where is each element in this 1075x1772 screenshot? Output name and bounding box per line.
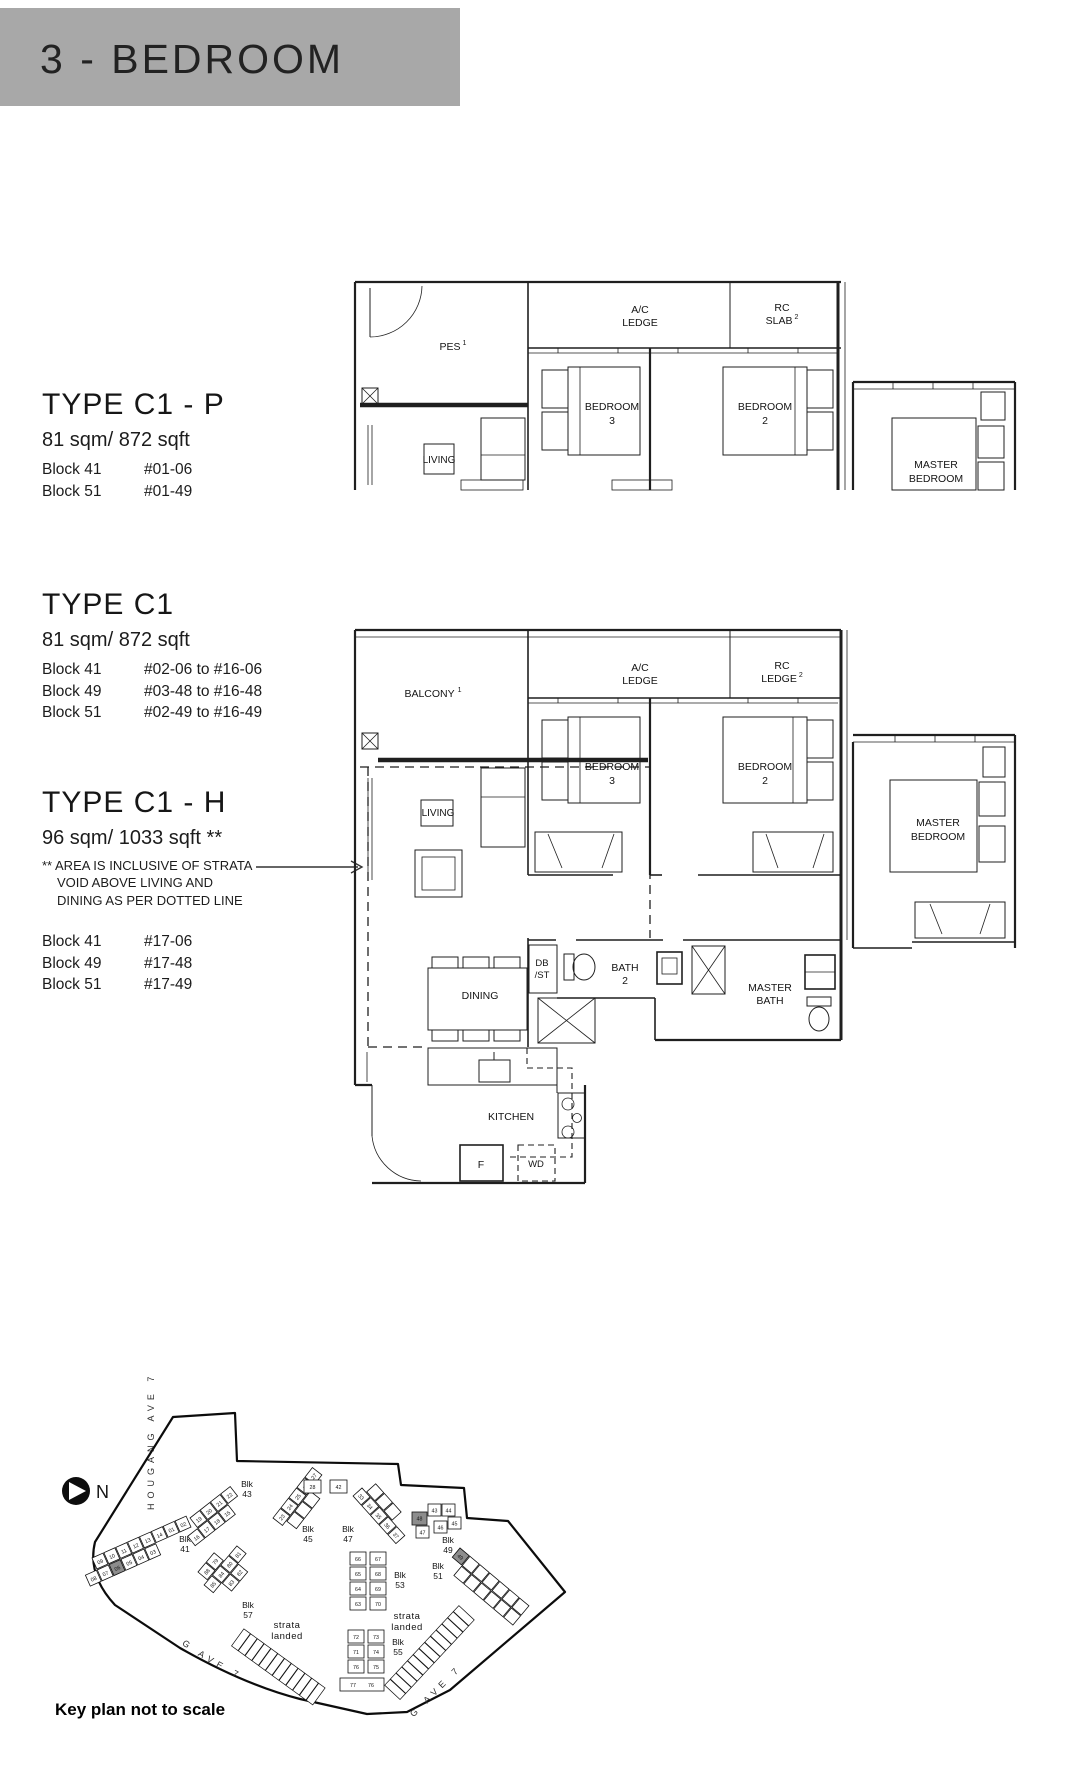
svg-text:76: 76 [368, 1683, 374, 1689]
svg-text:LEDGE2: LEDGE2 [761, 672, 803, 685]
unit-number: #02-49 to #16-49 [144, 702, 262, 724]
type-c1p-title: TYPE C1 - P [42, 388, 225, 422]
strata-landed-right-label: strata [394, 1611, 421, 1622]
blk55-cluster: 7273 7174 7675 7776 [340, 1630, 384, 1691]
room-label-master-bedroom: MASTER [914, 459, 958, 471]
living-furniture [415, 768, 525, 897]
block-label: Block 41 [42, 931, 118, 953]
entry-door-c1 [372, 1085, 421, 1181]
room-label-living: LIVING [422, 808, 455, 819]
strata-landed-left-label: strata [274, 1620, 301, 1631]
blk49-cluster: 48 4344 454647 [412, 1504, 461, 1538]
svg-text:47: 47 [343, 1534, 353, 1544]
floorplan-c1: BALCONY1 A/C LEDGE RC LEDGE2 BEDROOM 3 B… [318, 550, 1075, 1210]
svg-text:68: 68 [375, 1572, 381, 1578]
svg-text:76: 76 [353, 1665, 359, 1671]
unit-row: Block 51 #02-49 to #16-49 [42, 702, 262, 724]
unit-row: Block 41 #01-06 [42, 459, 225, 481]
svg-text:LEDGE: LEDGE [622, 675, 658, 687]
unit-row: Block 49 #17-48 [42, 953, 262, 975]
block-label: Block 51 [42, 702, 118, 724]
svg-text:44: 44 [446, 1509, 452, 1515]
blk43-cluster: 19202122 16171815 [180, 1487, 246, 1546]
svg-text:42: 42 [336, 1485, 342, 1491]
unit-number: #17-06 [144, 931, 192, 953]
living-furniture [424, 418, 525, 480]
wardrobe-hatch [535, 832, 833, 872]
svg-text:2: 2 [762, 775, 768, 787]
room-label-ac-ledge: A/C [631, 662, 649, 674]
north-label: N [96, 1482, 110, 1502]
type-c1p-area: 81 sqm/ 872 sqft [42, 429, 225, 452]
block-label: Block 49 [42, 681, 118, 703]
svg-text:46: 46 [438, 1526, 444, 1532]
room-label-bedroom3: BEDROOM [585, 401, 639, 413]
room-label-bedroom2: BEDROOM [738, 401, 792, 413]
svg-text:43: 43 [432, 1509, 438, 1515]
unit-number: #03-48 to #16-48 [144, 681, 262, 703]
svg-text:64: 64 [355, 1587, 361, 1593]
svg-text:BATH: BATH [756, 995, 783, 1007]
room-label-master-bedroom: MASTER [916, 817, 960, 829]
db-st-closet [529, 945, 557, 993]
strata-void-dashed-line [360, 767, 650, 1157]
svg-text:65: 65 [355, 1572, 361, 1578]
meter-box-icon [362, 388, 378, 404]
room-label-kitchen: KITCHEN [488, 1111, 534, 1123]
svg-text:41: 41 [180, 1544, 190, 1554]
block-label: Block 41 [42, 659, 118, 681]
room-label-ac-ledge: A/C [631, 304, 649, 316]
keyplan-caption: Key plan not to scale [55, 1700, 225, 1720]
room-label-bedroom3: BEDROOM [585, 761, 639, 773]
blk55-label: Blk [392, 1637, 405, 1647]
master-bath-fixtures [805, 955, 835, 1031]
blk45-label: Blk [302, 1524, 315, 1534]
svg-text:55: 55 [393, 1647, 403, 1657]
blk51-label: Blk [432, 1561, 445, 1571]
blk49-label: Blk [442, 1535, 455, 1545]
svg-text:LEDGE: LEDGE [622, 317, 658, 329]
label-fridge: F [478, 1159, 484, 1171]
blk47-label: Blk [342, 1524, 355, 1534]
unit-row: Block 49 #03-48 to #16-48 [42, 681, 262, 703]
svg-text:landed: landed [271, 1631, 303, 1642]
svg-text:43: 43 [242, 1489, 252, 1499]
label-washer-dryer: WD [528, 1159, 544, 1170]
svg-text:49: 49 [443, 1545, 453, 1555]
svg-text:51: 51 [433, 1571, 443, 1581]
page-title: 3 - BEDROOM [0, 8, 460, 110]
unit-number: #17-48 [144, 953, 192, 975]
block-label: Block 49 [42, 953, 118, 975]
svg-text:45: 45 [303, 1534, 313, 1544]
unit-number: #01-06 [144, 459, 192, 481]
svg-text:75: 75 [373, 1665, 379, 1671]
type-c1-area: 81 sqm/ 872 sqft [42, 629, 262, 652]
svg-text:/ST: /ST [535, 970, 550, 981]
wardrobe-hatch [915, 902, 1005, 938]
svg-text:landed: landed [391, 1622, 423, 1633]
svg-text:45: 45 [452, 1522, 458, 1528]
unit-number: #02-06 to #16-06 [144, 659, 262, 681]
svg-text:71: 71 [353, 1650, 359, 1656]
blk57-label: Blk [242, 1600, 255, 1610]
entry-door-c1p [370, 286, 422, 337]
shaft-box [538, 998, 595, 1043]
svg-text:63: 63 [355, 1602, 361, 1608]
room-label-bedroom2: BEDROOM [738, 761, 792, 773]
shower-stall [692, 946, 725, 994]
svg-text:57: 57 [243, 1610, 253, 1620]
blk53-cluster: 6667 6568 6469 6370 [350, 1552, 386, 1610]
svg-text:BEDROOM: BEDROOM [911, 831, 965, 843]
blk47-cluster: 3334353637 [353, 1479, 414, 1543]
strata-void-note: ** AREA IS INCLUSIVE OF STRATA VOID ABOV… [42, 857, 262, 909]
north-compass-icon: N [62, 1477, 110, 1505]
unit-row: Block 51 #17-49 [42, 974, 262, 996]
key-plan: N HOUGANG AVE 7 0910111213140102 0807060… [40, 1390, 580, 1730]
walls-c1 [355, 630, 1015, 1183]
meter-box-icon [362, 733, 378, 749]
block-label: Block 41 [42, 459, 118, 481]
room-label-master-bath: MASTER [748, 982, 792, 994]
svg-text:48: 48 [417, 1517, 423, 1523]
blk53-label: Blk [394, 1570, 407, 1580]
svg-text:SLAB2: SLAB2 [766, 314, 799, 327]
type-c1-info: TYPE C1 81 sqm/ 872 sqft Block 41 #02-06… [42, 588, 262, 724]
svg-text:70: 70 [375, 1602, 381, 1608]
bedroom2-bed [723, 717, 833, 803]
floorplan-c1p: PES1 A/C LEDGE RC SLAB2 BEDROOM 3 BEDROO… [318, 240, 1075, 490]
street-label-right: HOUGANG AVE 7 [34, 1382, 464, 1719]
room-label-living: LIVING [423, 455, 456, 466]
svg-text:3: 3 [609, 775, 615, 787]
unit-row: Block 41 #17-06 [42, 931, 262, 953]
svg-text:28: 28 [310, 1485, 316, 1491]
wardrobe-hatch [461, 480, 672, 490]
svg-text:BEDROOM: BEDROOM [909, 473, 963, 485]
svg-text:67: 67 [375, 1557, 381, 1563]
blk41-cluster: 0910111213140102 080706050403 [80, 1516, 196, 1586]
room-label-rc-slab: RC [774, 302, 790, 314]
block-label: Block 51 [42, 481, 118, 503]
svg-text:66: 66 [355, 1557, 361, 1563]
svg-text:2: 2 [762, 415, 768, 427]
site-boundary [93, 1413, 565, 1714]
room-label-bath2: BATH [611, 962, 638, 974]
room-label-pes: PES1 [440, 340, 467, 353]
svg-text:53: 53 [395, 1580, 405, 1590]
floorplan-page: { "header": { "title": "3 - BEDROOM" }, … [0, 0, 1075, 1772]
unit-row: Block 51 #01-49 [42, 481, 225, 503]
master-bed [890, 747, 1005, 872]
blk57-cluster: 8879 85848081 8382 [194, 1538, 256, 1601]
type-c1-title: TYPE C1 [42, 588, 262, 622]
mid-units: 2842 [304, 1480, 347, 1493]
blk43-label: Blk [241, 1479, 254, 1489]
type-c1p-info: TYPE C1 - P 81 sqm/ 872 sqft Block 41 #0… [42, 388, 225, 502]
svg-text:72: 72 [353, 1635, 359, 1641]
unit-row: Block 41 #02-06 to #16-06 [42, 659, 262, 681]
svg-text:2: 2 [622, 975, 628, 987]
room-label-rc-ledge: RC [774, 660, 790, 672]
title-banner: 3 - BEDROOM [0, 8, 460, 106]
unit-number: #17-49 [144, 974, 192, 996]
type-c1h-area: 96 sqm/ 1033 sqft ** [42, 827, 262, 850]
svg-text:77: 77 [350, 1683, 356, 1689]
svg-text:69: 69 [375, 1587, 381, 1593]
street-label-left: HOUGANG AVE 7 [146, 1372, 156, 1510]
svg-text:47: 47 [420, 1531, 426, 1537]
room-label-dining: DINING [462, 990, 499, 1002]
svg-text:73: 73 [373, 1635, 379, 1641]
room-label-db-st: DB [535, 958, 548, 969]
type-c1h-title: TYPE C1 - H [42, 786, 262, 820]
svg-text:74: 74 [373, 1650, 379, 1656]
svg-text:3: 3 [609, 415, 615, 427]
unit-number: #01-49 [144, 481, 192, 503]
room-label-balcony: BALCONY1 [404, 687, 461, 700]
block-label: Block 51 [42, 974, 118, 996]
type-c1h-info: TYPE C1 - H 96 sqm/ 1033 sqft ** ** AREA… [42, 786, 262, 996]
